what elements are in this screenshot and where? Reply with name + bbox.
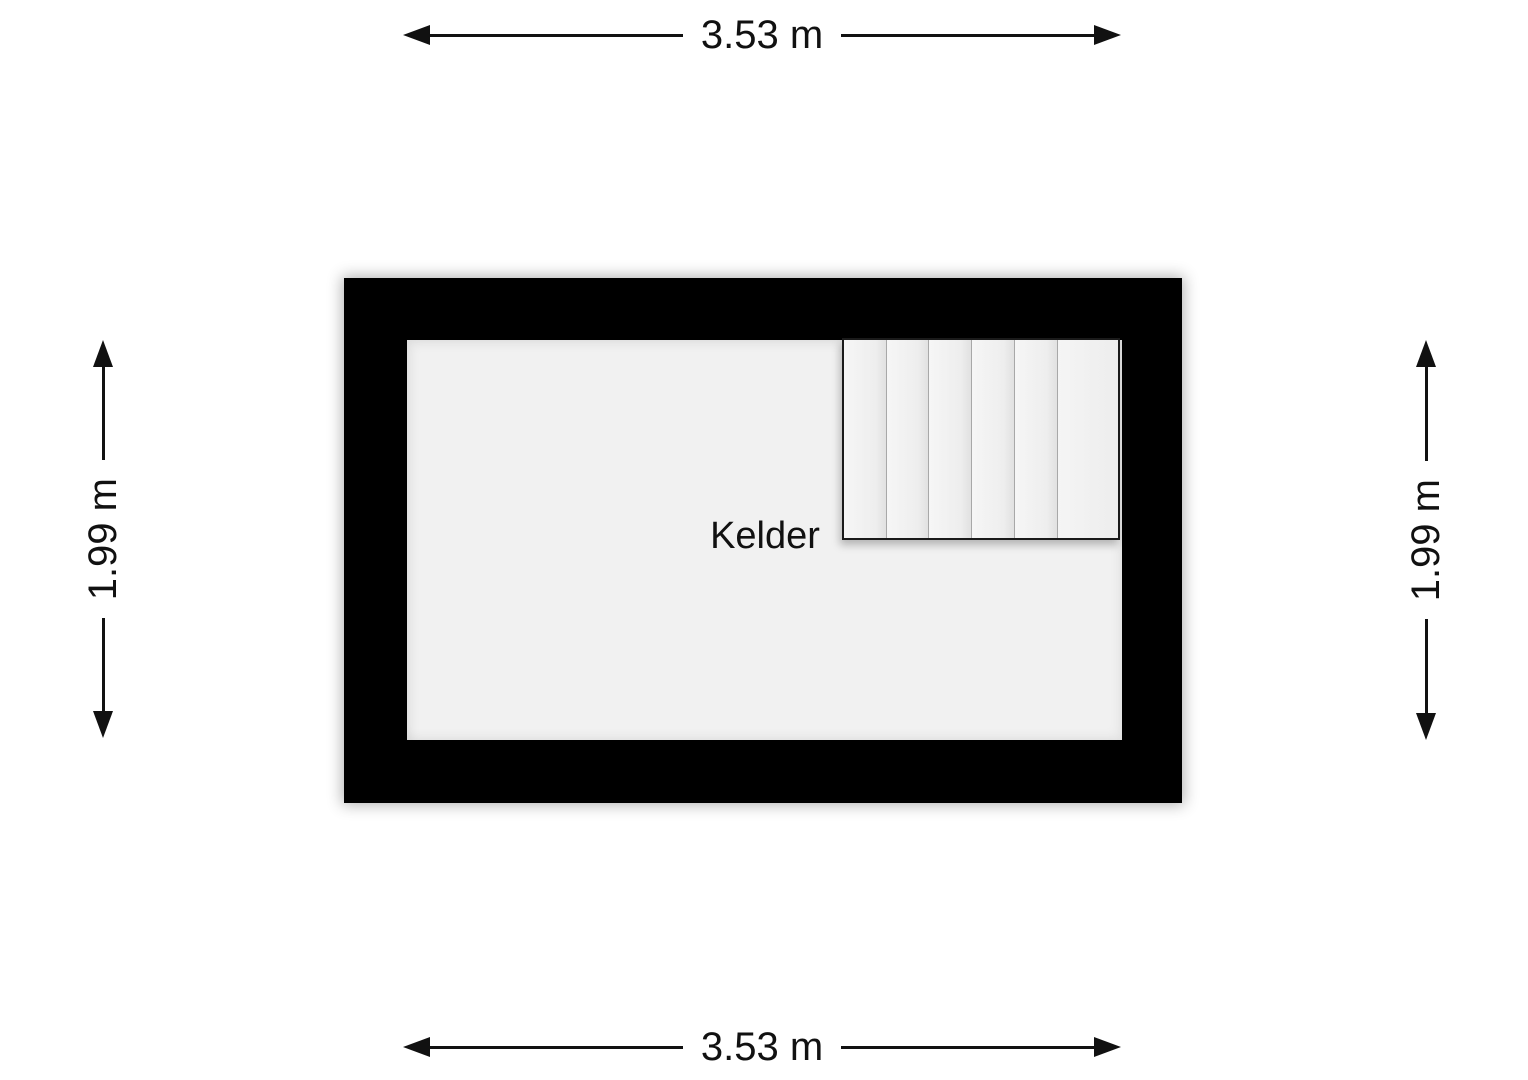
arrow-up-icon: [93, 340, 113, 367]
room-label: Kelder: [710, 517, 820, 555]
dimension-left: 1.99 m: [81, 340, 125, 738]
arrow-left-icon: [403, 25, 430, 45]
dimension-label-top: 3.53 m: [683, 15, 841, 55]
arrow-left-icon: [403, 1037, 430, 1057]
floorplan-canvas: 3.53 m 1.99 m 1.99 m Kelder 3.53 m: [0, 0, 1528, 1080]
arrow-down-icon: [1416, 713, 1436, 740]
stair-tread: [1058, 340, 1118, 538]
stair-tread: [1015, 340, 1058, 538]
stair-tread: [972, 340, 1015, 538]
dimension-top: 3.53 m: [403, 13, 1121, 57]
arrow-down-icon: [93, 711, 113, 738]
arrow-right-icon: [1094, 25, 1121, 45]
staircase: [842, 338, 1120, 540]
arrow-right-icon: [1094, 1037, 1121, 1057]
arrow-up-icon: [1416, 340, 1436, 367]
stair-tread: [844, 340, 887, 538]
dimension-bottom: 3.53 m: [403, 1025, 1121, 1069]
stair-tread: [887, 340, 930, 538]
dimension-line: [102, 618, 105, 711]
dimension-label-left: 1.99 m: [83, 460, 123, 618]
dimension-line: [1425, 619, 1428, 713]
dimension-line: [841, 34, 1094, 37]
stair-tread: [929, 340, 972, 538]
dimension-line: [430, 34, 683, 37]
dimension-right: 1.99 m: [1404, 340, 1448, 740]
dimension-label-right: 1.99 m: [1406, 461, 1446, 619]
dimension-line: [102, 367, 105, 460]
dimension-label-bottom: 3.53 m: [683, 1027, 841, 1067]
dimension-line: [841, 1046, 1094, 1049]
dimension-line: [430, 1046, 683, 1049]
dimension-line: [1425, 367, 1428, 461]
